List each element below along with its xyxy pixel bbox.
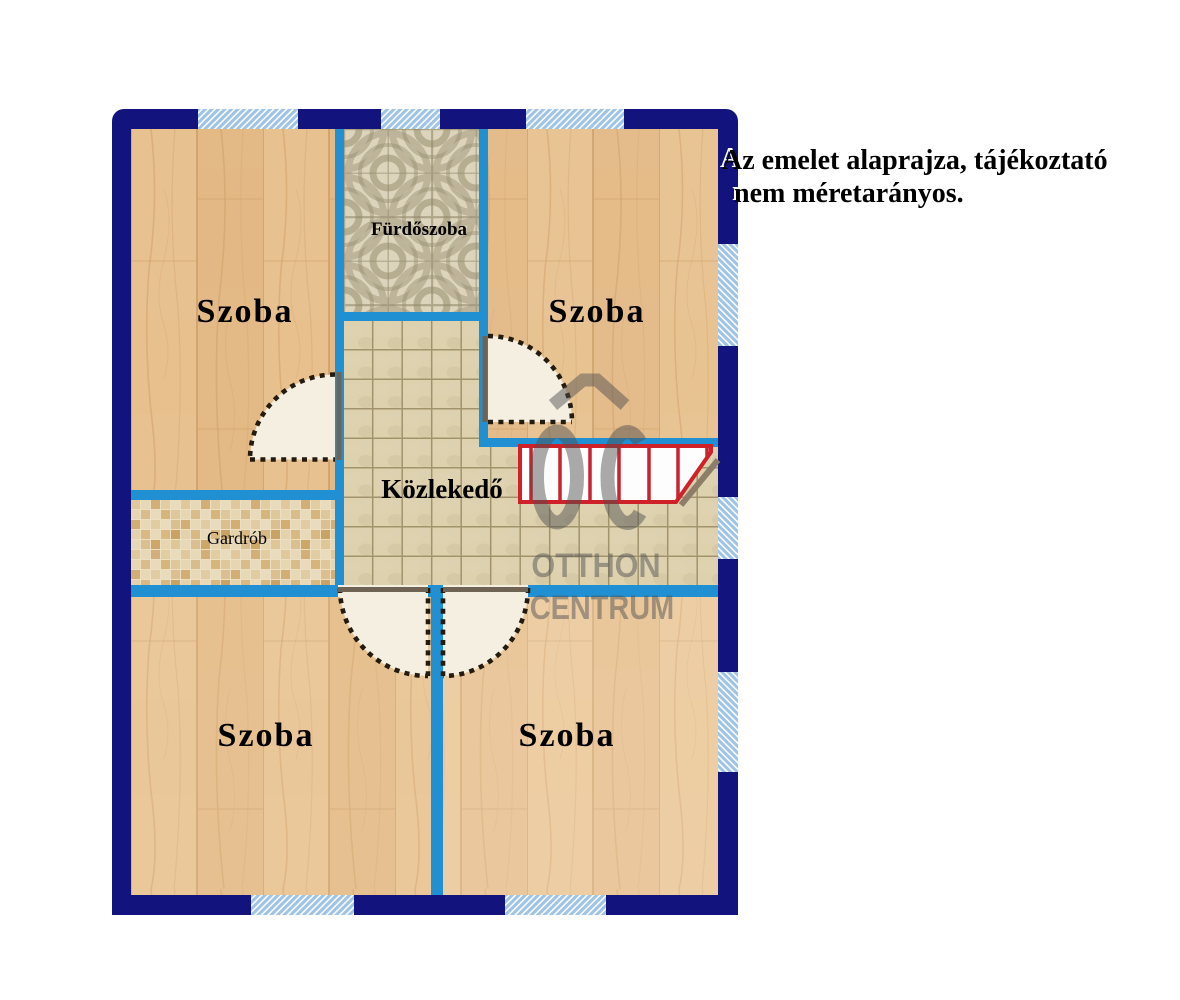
svg-text:nem méretarányos.: nem méretarányos. (734, 178, 964, 209)
svg-text:OTTHON: OTTHON (531, 547, 660, 585)
svg-text:Fürdőszoba: Fürdőszoba (371, 219, 468, 240)
svg-text:Az emelet alaprajza, tájékozta: Az emelet alaprajza, tájékoztató (722, 145, 1108, 176)
svg-text:Szoba: Szoba (549, 293, 646, 330)
svg-text:Gardrób: Gardrób (207, 528, 267, 548)
svg-text:Közlekedő: Közlekedő (381, 474, 503, 504)
svg-text:Szoba: Szoba (519, 717, 616, 754)
svg-text:Szoba: Szoba (218, 717, 315, 754)
svg-text:CENTRUM: CENTRUM (530, 588, 674, 627)
svg-text:Szoba: Szoba (197, 293, 294, 330)
